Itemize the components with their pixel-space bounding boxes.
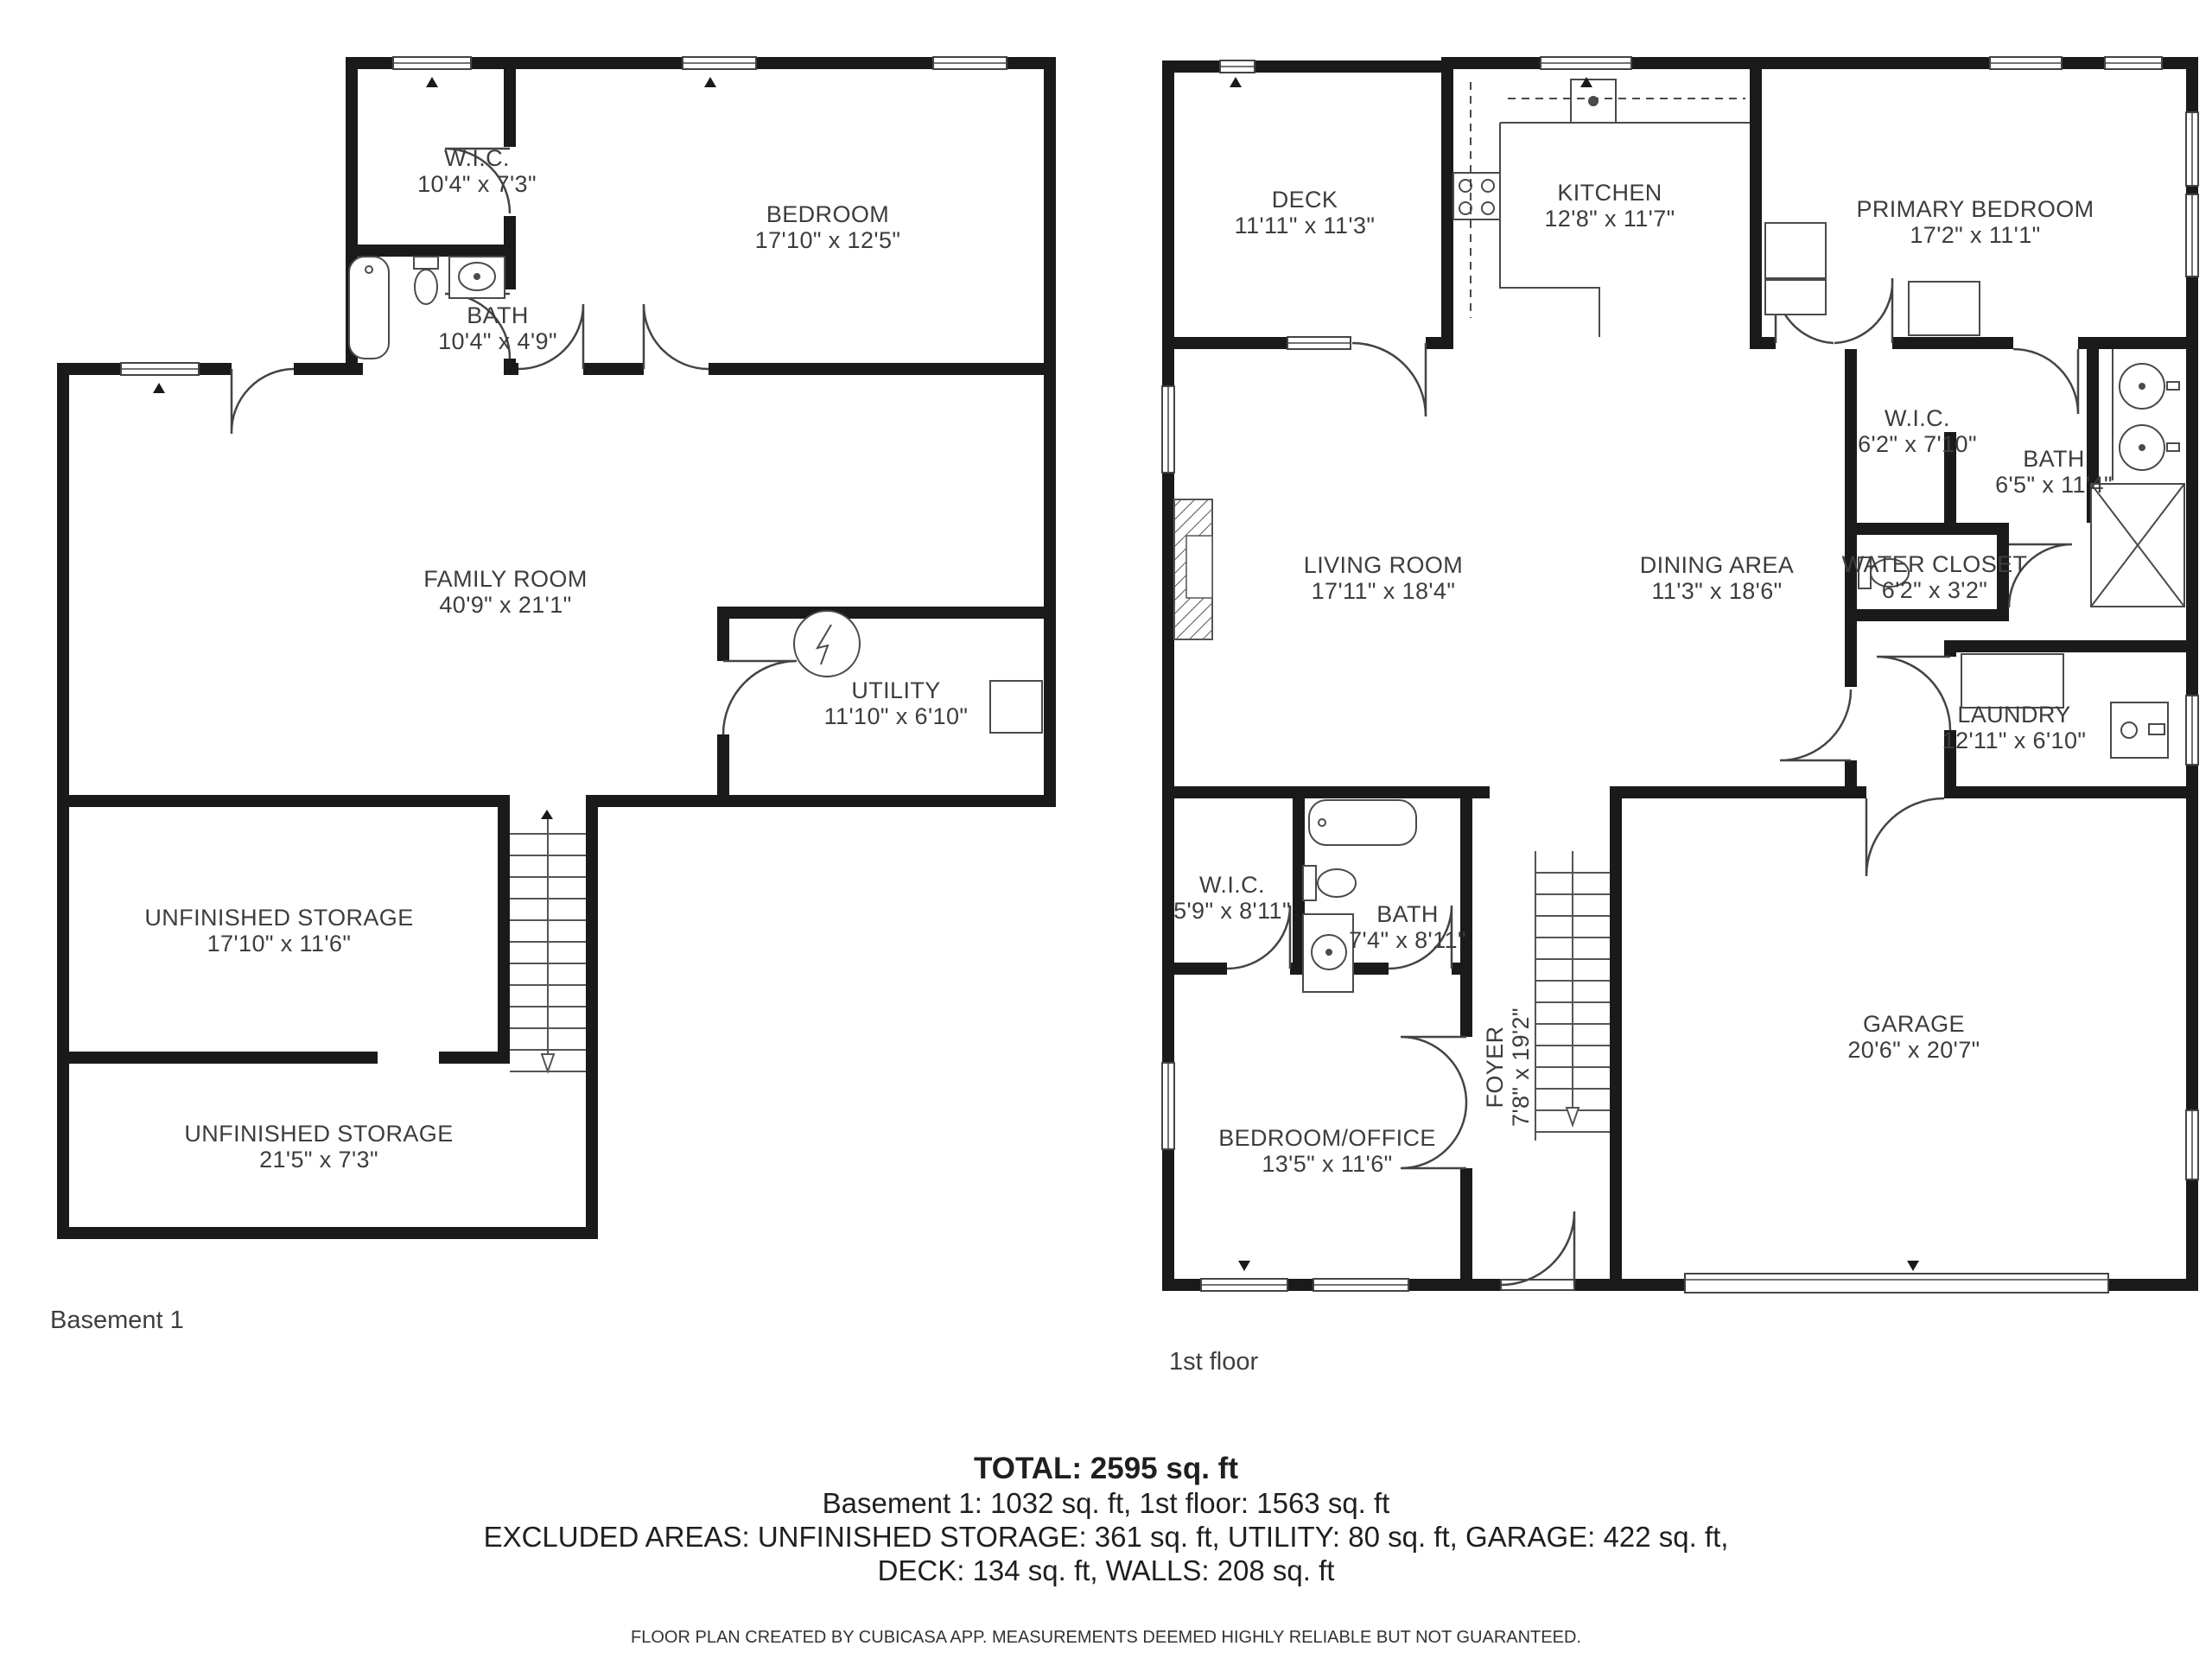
room-label-foyer: FOYER 7'8" x 19'2" — [1482, 1007, 1534, 1127]
room-label-bath-office: BATH 7'4" x 8'11" — [1349, 901, 1466, 953]
room-label-family-room: FAMILY ROOM 40'9" x 21'1" — [423, 566, 587, 618]
fireplace-icon — [1174, 499, 1212, 639]
room-label-basement-wic: W.I.C. 10'4" x 7'3" — [417, 145, 537, 197]
garage-door — [1685, 1274, 2108, 1293]
closet-icon — [1765, 223, 1826, 278]
disclaimer: FLOOR PLAN CREATED BY CUBICASA APP. MEAS… — [0, 1628, 2212, 1648]
appliance-icon — [990, 681, 1042, 733]
room-label-dining-area: DINING AREA 11'3" x 18'6" — [1640, 552, 1794, 604]
floor-areas: Basement 1: 1032 sq. ft, 1st floor: 1563… — [0, 1486, 2212, 1520]
room-label-utility: UTILITY 11'10" x 6'10" — [824, 677, 969, 729]
area-summary: TOTAL: 2595 sq. ft Basement 1: 1032 sq. … — [0, 1452, 2212, 1587]
room-label-primary-bedroom: PRIMARY BEDROOM 17'2" x 11'1" — [1856, 196, 2094, 248]
stairs-first-floor — [1535, 851, 1610, 1141]
toilet-icon — [1303, 866, 1316, 900]
room-label-laundry: LAUNDRY 12'11" x 6'10" — [1942, 702, 2087, 753]
excluded-areas-1: EXCLUDED AREAS: UNFINISHED STORAGE: 361 … — [0, 1520, 2212, 1554]
room-label-water-closet: WATER CLOSET 6'2" x 3'2" — [1842, 551, 2028, 603]
room-label-basement-bedroom: BEDROOM 17'10" x 12'5" — [755, 201, 901, 253]
room-label-living-room: LIVING ROOM 17'11" x 18'4" — [1304, 552, 1463, 604]
excluded-areas-2: DECK: 134 sq. ft, WALLS: 208 sq. ft — [0, 1554, 2212, 1587]
room-label-wic-office: W.I.C. 5'9" x 8'11" — [1173, 872, 1291, 924]
room-label-bedroom-office: BEDROOM/OFFICE 13'5" x 11'6" — [1218, 1125, 1436, 1177]
floorplan-page: W.I.C. 10'4" x 7'3" BATH 10'4" x 4'9" BE… — [0, 0, 2212, 1659]
tub-faucet-icon — [365, 266, 372, 273]
room-label-unfinished-storage-2: UNFINISHED STORAGE 21'5" x 7'3" — [184, 1121, 453, 1173]
water-heater-icon — [794, 611, 860, 677]
stairs-basement — [510, 812, 586, 1071]
room-label-basement-bath: BATH 10'4" x 4'9" — [438, 302, 557, 354]
room-label-kitchen: KITCHEN 12'8" x 11'7" — [1544, 180, 1675, 232]
toilet-icon — [414, 257, 438, 269]
room-label-garage: GARAGE 20'6" x 20'7" — [1847, 1011, 1980, 1063]
floorplan-drawing — [0, 0, 2212, 1659]
room-label-wic-primary: W.I.C. 6'2" x 7'10" — [1858, 405, 1977, 457]
cabinet-icon — [1961, 654, 2063, 708]
total-area: TOTAL: 2595 sq. ft — [0, 1452, 2212, 1486]
room-label-bath-primary: BATH 6'5" x 11'4" — [1995, 446, 2113, 498]
room-label-deck: DECK 11'11" x 11'3" — [1235, 187, 1376, 238]
wardrobe-icon — [1909, 282, 1980, 335]
room-label-unfinished-storage-1: UNFINISHED STORAGE 17'10" x 11'6" — [144, 905, 413, 957]
first-floor-title: 1st floor — [1169, 1348, 1258, 1376]
basement-title: Basement 1 — [50, 1306, 184, 1335]
